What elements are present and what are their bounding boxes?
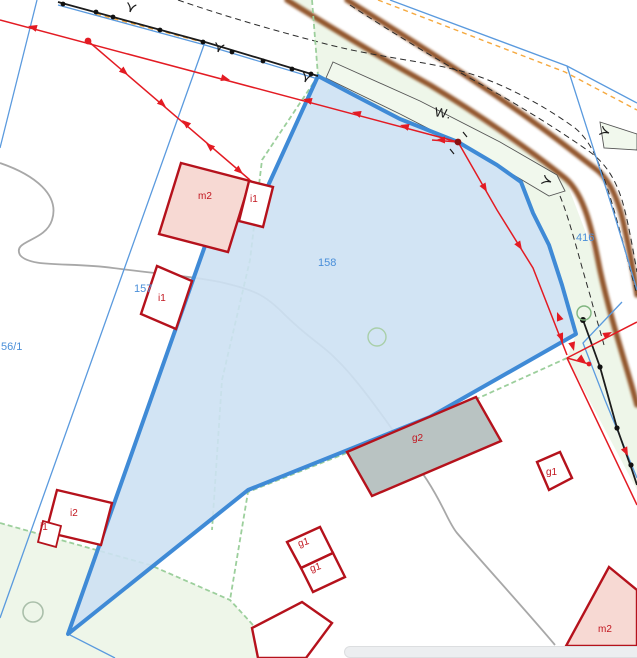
road-label: W. xyxy=(433,104,453,122)
building-label-i1-small: i1 xyxy=(40,522,48,533)
survey-station-icon xyxy=(455,139,462,146)
building-label-m2-top: m2 xyxy=(198,191,212,202)
parcel-label-157: 157 xyxy=(134,283,152,295)
parcel-label-416: 416 xyxy=(576,232,594,244)
building-label-i2: i2 xyxy=(70,508,78,519)
building-label-m2-bottom: m2 xyxy=(598,624,612,635)
building-small-bottom[interactable] xyxy=(252,602,332,658)
building-label-g2: g2 xyxy=(412,433,424,444)
parcel-label-56-1: 56/1 xyxy=(1,341,22,353)
fence-line-top xyxy=(58,2,318,77)
building-label-g1-right: g1 xyxy=(546,467,558,478)
map-canvas[interactable]: W. 158 157 56/1 416 m2 i1 i1 i2 i1 g2 g1… xyxy=(0,0,637,658)
building-label-i1-top: i1 xyxy=(250,194,258,205)
parcel-label-158: 158 xyxy=(318,257,336,269)
building-label-i1-157: i1 xyxy=(158,293,166,304)
tree-symbol-icon xyxy=(126,2,136,12)
survey-station-icon xyxy=(85,38,92,45)
horizontal-scrollbar-thumb[interactable] xyxy=(344,646,637,658)
